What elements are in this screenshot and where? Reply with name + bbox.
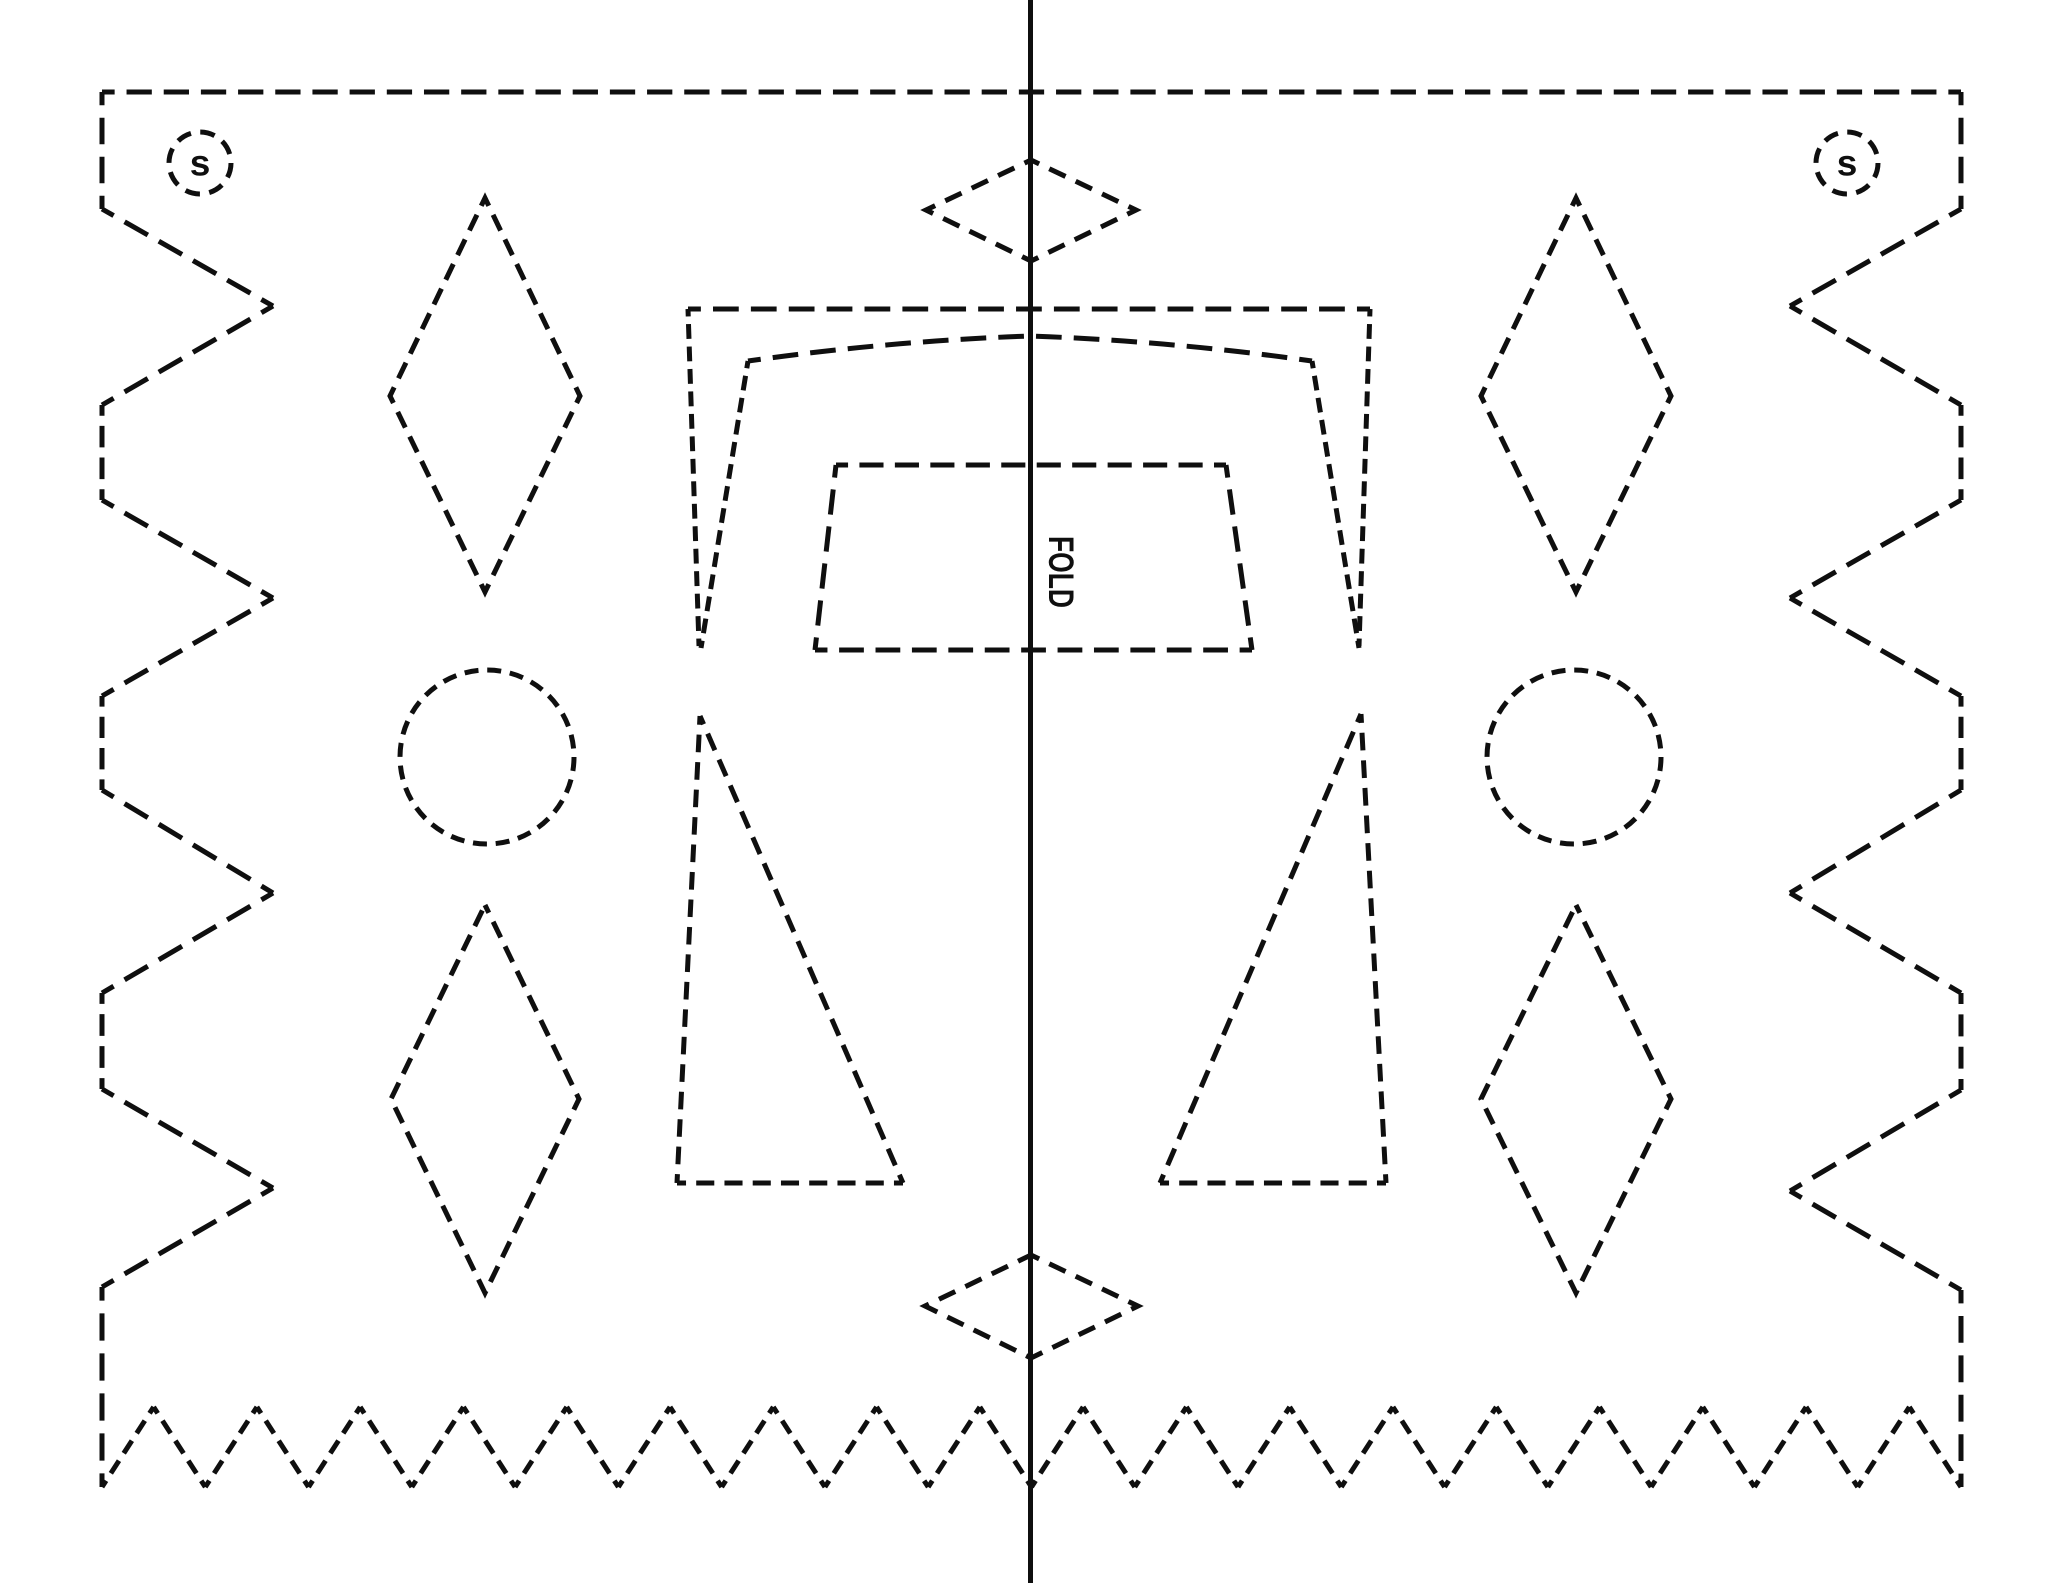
svg-text:FOLD: FOLD	[1041, 536, 1080, 608]
svg-text:s: s	[190, 143, 211, 184]
svg-text:s: s	[1837, 143, 1858, 184]
